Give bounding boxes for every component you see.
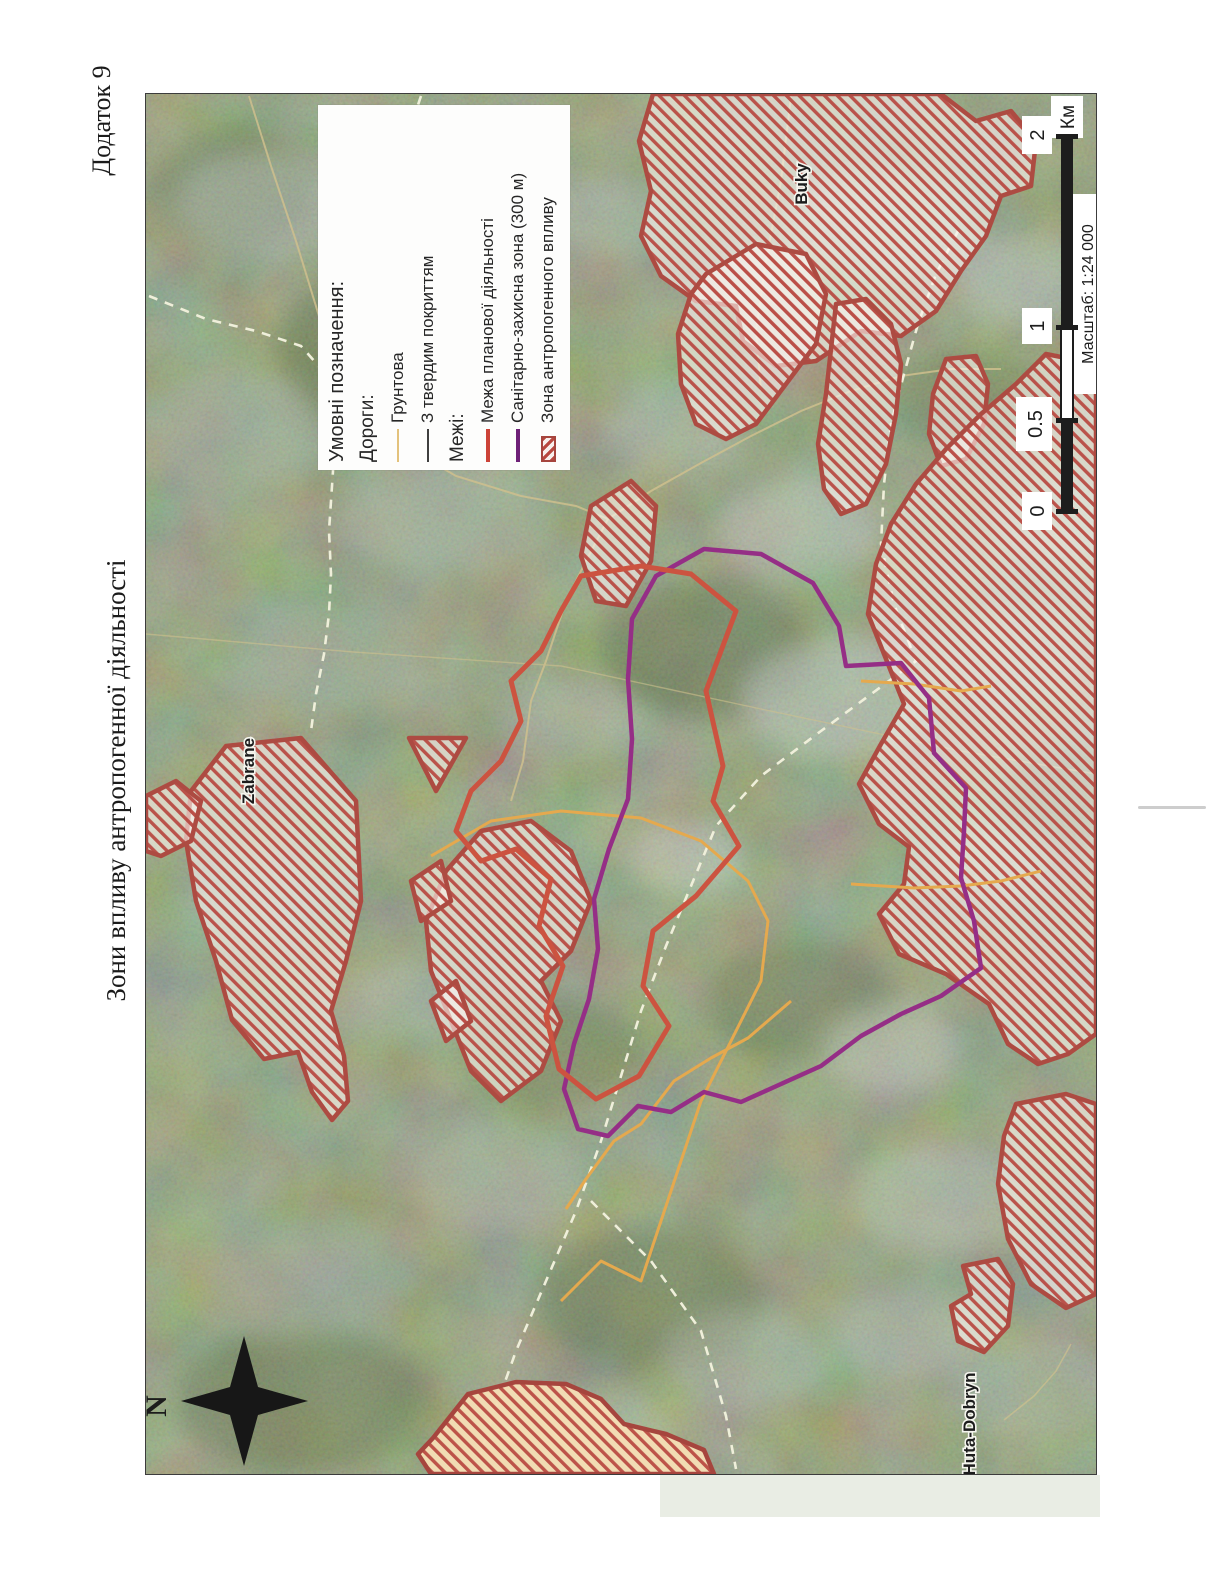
legend-item-label: Грунтова xyxy=(388,352,408,423)
north-label: N xyxy=(146,1395,173,1417)
scan-artifact-line xyxy=(1138,806,1206,809)
legend-content: Умовні позначення: Дороги: Грунтова З тв… xyxy=(318,105,570,470)
legend-heading: Умовні позначення: xyxy=(322,109,353,462)
place-label-huta-dobryn: Huta-Dobryn xyxy=(960,1373,979,1474)
scale-tick-0: 0 xyxy=(1027,505,1049,516)
scale-ratio: Масштаб: 1:24 000 xyxy=(1080,224,1096,364)
legend-bounds-heading: Межі: xyxy=(443,109,473,462)
legend-item-planned-boundary: Межа планової діяльності xyxy=(473,109,503,462)
hatched-zone-swatch-icon xyxy=(541,429,556,462)
place-label-buky: Buky xyxy=(792,163,811,205)
appendix-label-block: Додаток 9 xyxy=(84,48,120,193)
planned-boundary-line-icon xyxy=(486,429,490,462)
legend-item-anthropogenic-zone: Зона антропогенного впливу xyxy=(533,109,563,462)
legend-item-dirt-road: Грунтова xyxy=(383,109,413,462)
legend-item-sanitary-zone: Санітарно-захисна зона (300 м) xyxy=(503,109,533,462)
map-legend: Умовні позначення: Дороги: Грунтова З тв… xyxy=(318,105,570,470)
legend-item-label: З твердим покриттям xyxy=(418,256,438,423)
page-title: Зони впливу антропогенної діяльності xyxy=(96,533,136,1028)
scale-tick-1: 1 xyxy=(1027,320,1049,331)
scale-tick-2: 2 xyxy=(1027,129,1049,140)
legend-item-label: Зона антропогенного впливу xyxy=(538,197,558,423)
dirt-road-line-icon xyxy=(397,429,400,462)
legend-roads-heading: Дороги: xyxy=(353,109,383,462)
legend-item-label: Межа планової діяльності xyxy=(478,218,498,423)
satellite-map: Zabrane Buky Huta-Dobryn N 2 1 0.5 0 Км xyxy=(145,93,1097,1475)
legend-item-paved-road: З твердим покриттям xyxy=(413,109,443,462)
appendix-label: Додаток 9 xyxy=(84,48,120,193)
page-title-block: Зони впливу антропогенної діяльності xyxy=(96,533,136,1028)
scale-unit: Км xyxy=(1058,105,1079,129)
place-label-zabrane: Zabrane xyxy=(239,738,258,804)
sanitary-zone-line-icon xyxy=(516,429,520,462)
scale-tick-05: 0.5 xyxy=(1025,410,1047,438)
scan-bleed-strip xyxy=(660,1475,1100,1517)
map-canvas: Zabrane Buky Huta-Dobryn N 2 1 0.5 0 Км xyxy=(146,94,1096,1474)
paved-road-line-icon xyxy=(427,429,430,462)
legend-item-label: Санітарно-захисна зона (300 м) xyxy=(508,173,528,423)
scanned-document-page: { "page": { "appendix_label": "Додаток 9… xyxy=(0,0,1219,1574)
